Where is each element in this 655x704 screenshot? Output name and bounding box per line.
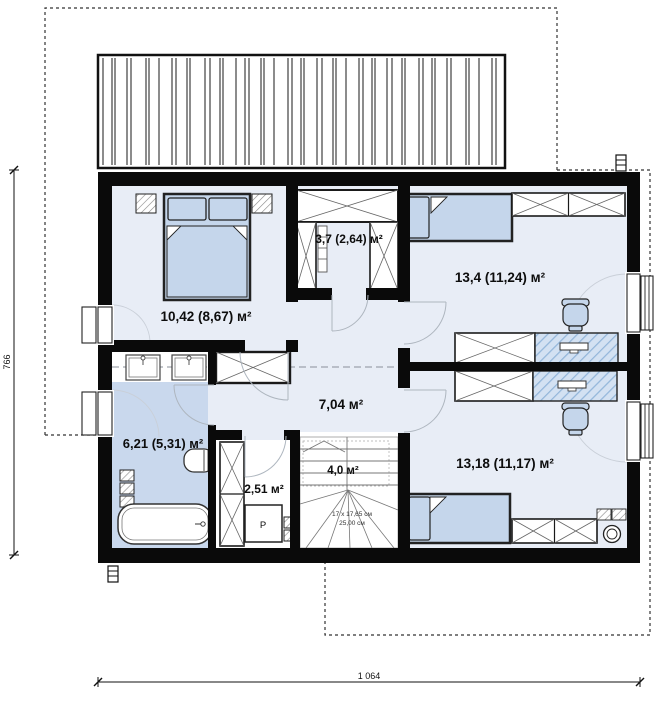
staircase — [300, 437, 398, 548]
bathtub — [118, 504, 212, 544]
room-label-bathroom: 6,21 (5,31) м² — [123, 436, 204, 451]
room-label-stairs: 4,0 м² — [327, 465, 359, 477]
bedroom2-desk — [535, 333, 618, 363]
bedroom3-desk — [533, 371, 617, 401]
washer-label: P — [260, 520, 266, 531]
window-left-1 — [82, 305, 114, 345]
room-label-closet: 3,7 (2,64) м² — [315, 232, 383, 246]
bedroom2-storage — [455, 333, 535, 363]
stairs-note-2: 25,00 см — [339, 520, 365, 527]
room-label-bedroom2: 13,4 (11,24) м² — [455, 270, 546, 285]
single-bed-bottom — [406, 494, 510, 543]
sink-left — [126, 355, 160, 380]
dimension-bottom: 1 064 — [94, 671, 644, 687]
nightstand-left — [136, 194, 156, 213]
chimney-top-right — [616, 155, 626, 171]
floor-plan: 10,42 (8,67) м² 3,7 (2,64) м² 13,4 (11,2… — [0, 0, 655, 704]
dimension-left: 766 — [2, 166, 19, 559]
room-label-hallway: 7,04 м² — [319, 397, 364, 412]
sink-right — [172, 355, 206, 380]
double-bed — [164, 194, 250, 300]
stairs-note-1: 17 x 17,65 см — [332, 511, 372, 518]
bath-shelf — [120, 470, 134, 507]
window-right-2 — [625, 400, 653, 462]
window-right-1 — [625, 272, 653, 334]
dimension-label-width: 1 064 — [358, 671, 381, 681]
chimney-bottom-left — [108, 566, 118, 582]
nightstand-right — [252, 194, 272, 213]
bedroom3-storage — [455, 371, 533, 401]
terrace — [98, 55, 505, 168]
room-label-bedroom1: 10,42 (8,67) м² — [160, 309, 252, 324]
closet-left-wardrobe — [296, 222, 316, 290]
bedroom3-wardrobe — [512, 519, 597, 543]
room-label-utility: 2,51 м² — [244, 482, 284, 496]
bedroom2-wardrobe — [512, 193, 625, 216]
single-bed-top — [405, 194, 512, 241]
dimension-label-height: 766 — [2, 354, 12, 369]
window-left-2 — [82, 390, 114, 437]
closet-top-storage — [296, 190, 398, 222]
utility-wardrobe — [220, 442, 244, 546]
hall-wardrobe — [216, 352, 290, 383]
room-label-bedroom3: 13,18 (11,17) м² — [456, 456, 554, 471]
